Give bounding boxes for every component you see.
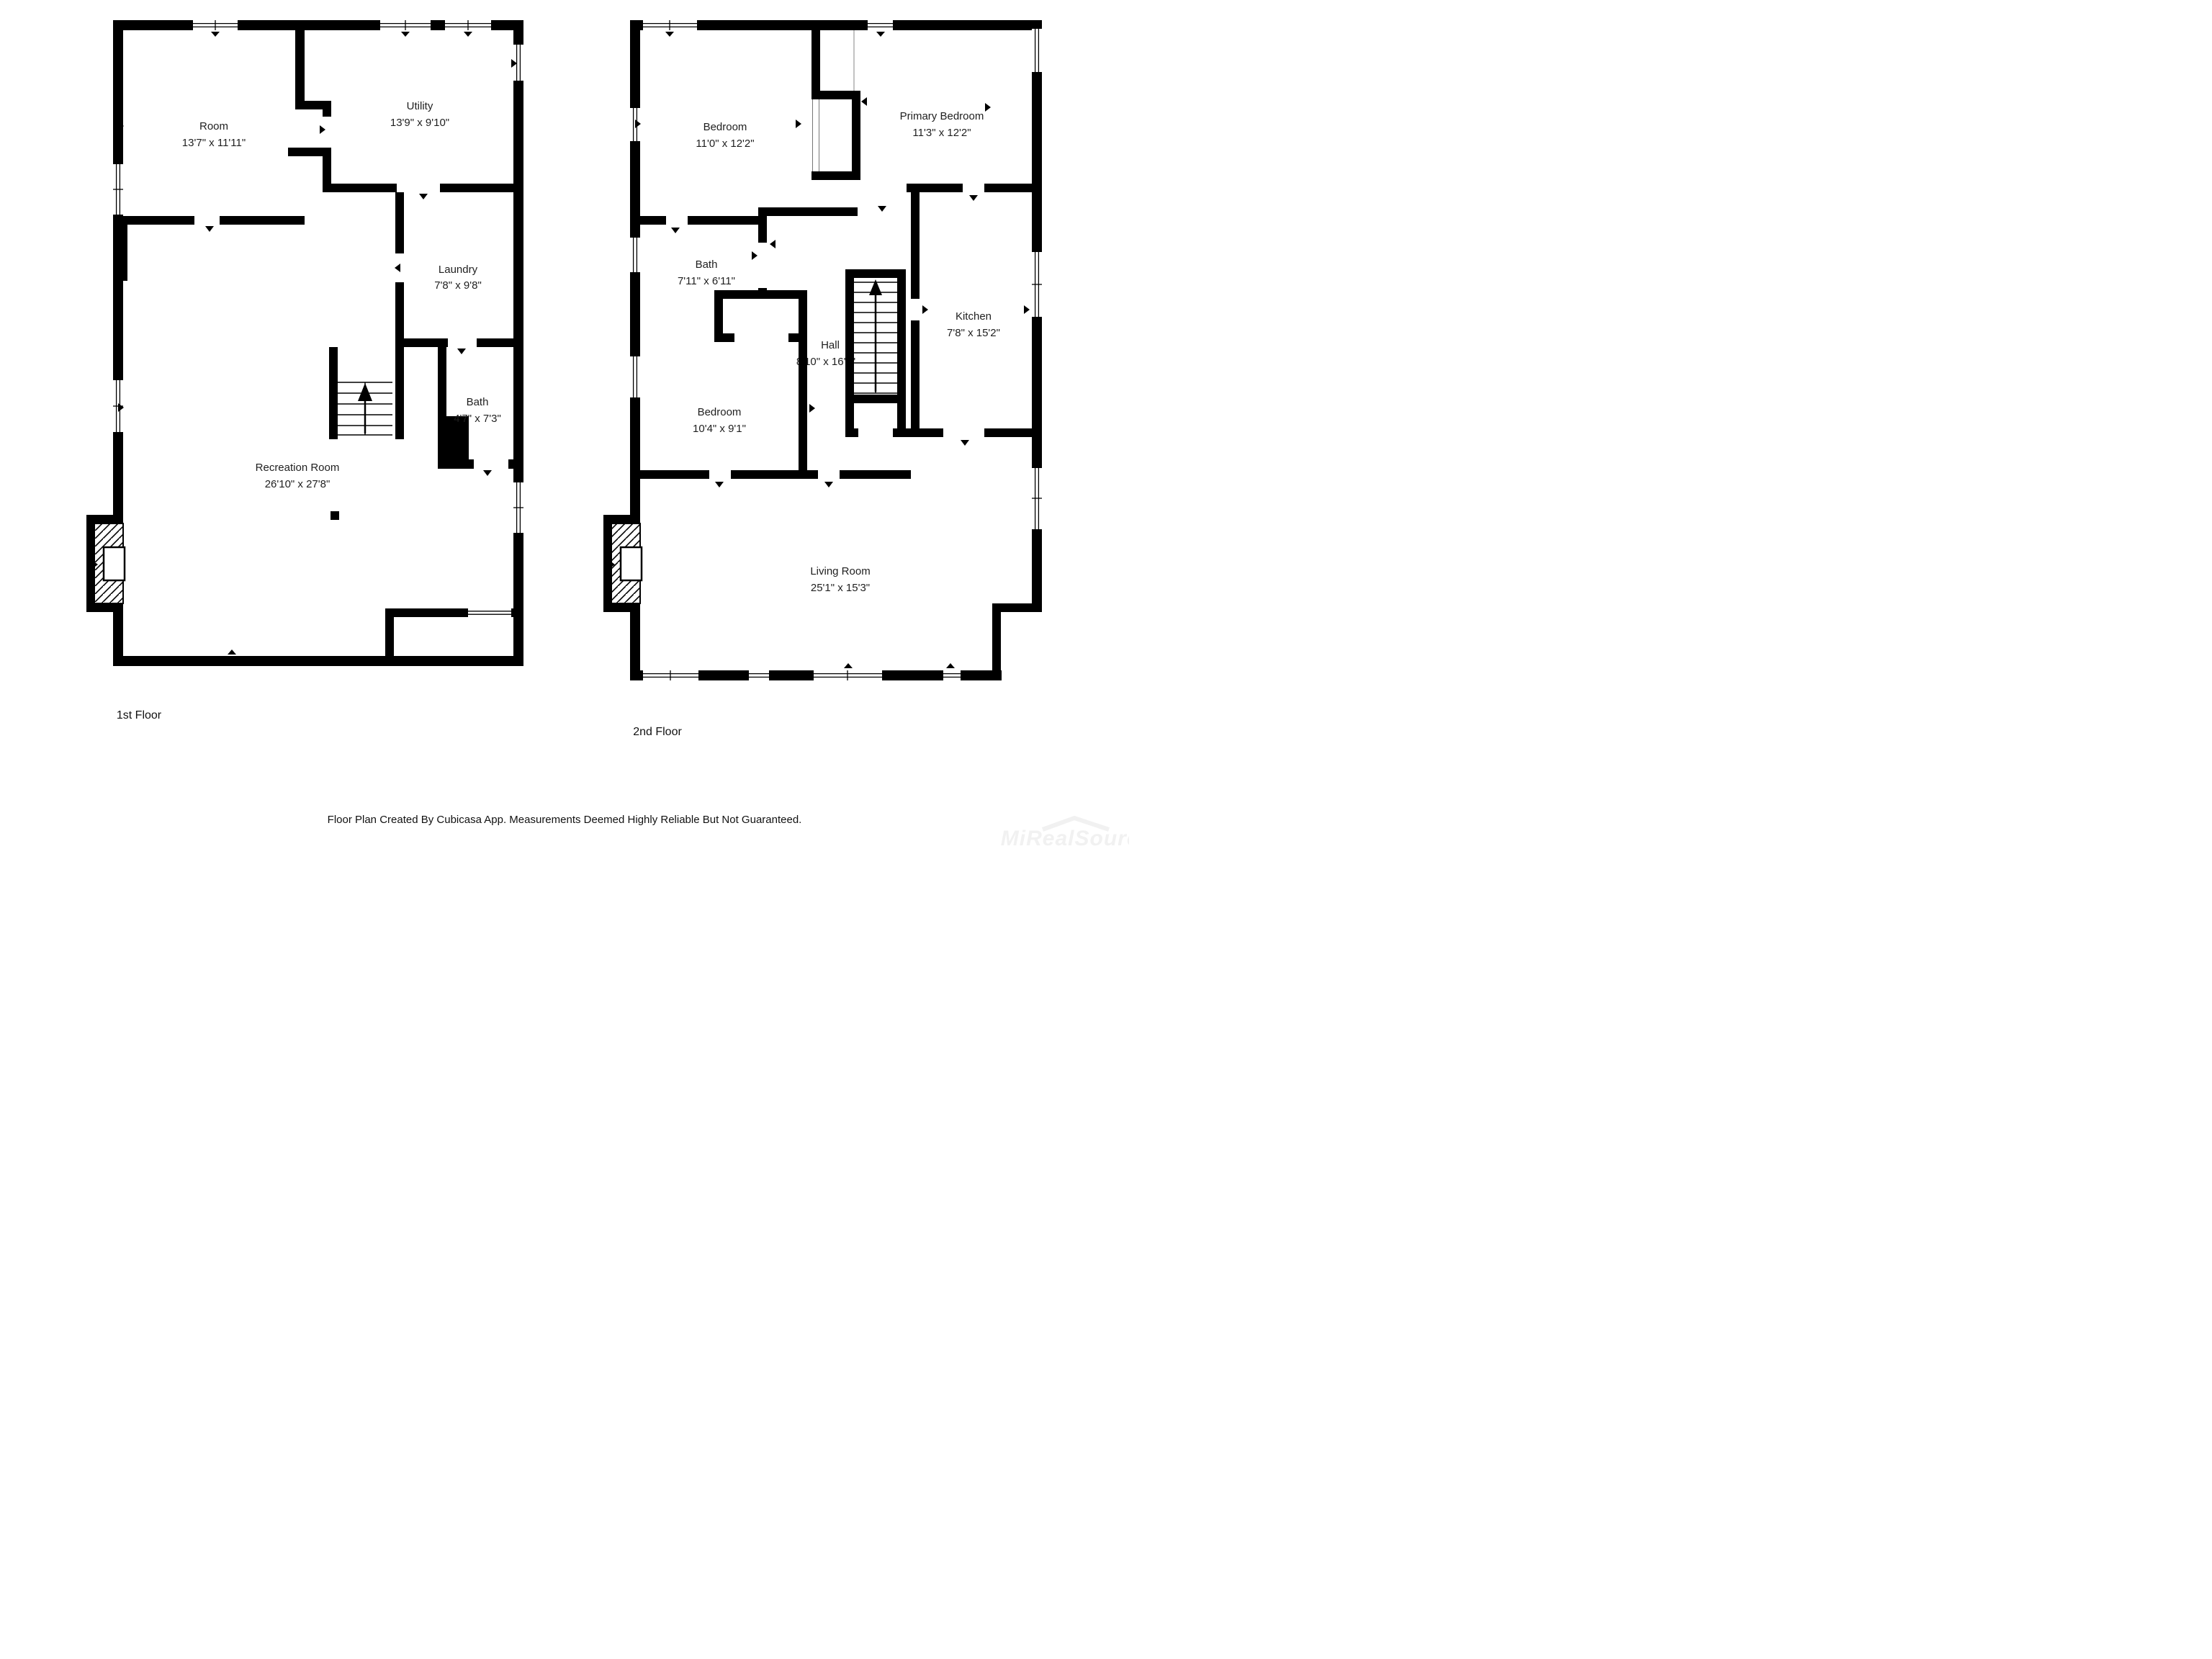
room-dims: 13'7" x 11'11" [182,137,246,149]
floor-label-1st: 1st Floor [117,709,162,721]
floor-plan-canvas: Room 13'7" x 11'11" Utility 13'9" x 9'10… [0,0,1129,847]
room-dims: 7'8" x 9'8" [434,279,482,292]
room-name: Utility [407,100,433,112]
room-dims: 7'11" x 6'11" [678,275,735,287]
window [513,482,523,533]
window [1032,468,1042,529]
window [113,164,123,215]
room-name: Bedroom [703,121,747,133]
room-dims: 11'3" x 12'2" [912,127,971,139]
window [1032,252,1042,317]
room-dims: 26'10" x 27'8" [265,478,331,490]
watermark: MiRealSource [1001,818,1129,847]
floorplan-1st-floor: Room 13'7" x 11'11" Utility 13'9" x 9'10… [86,20,523,721]
room-name: Bedroom [698,406,742,418]
room-dims: 11'0" x 12'2" [696,138,754,150]
window [468,608,511,617]
window [380,20,431,30]
room-name: Living Room [810,565,870,577]
window [445,20,491,30]
room-name: Kitchen [956,310,992,323]
room-name: Bath [467,396,489,408]
room-dims: 13'9" x 9'10" [390,117,449,129]
watermark-text: MiRealSource [1001,827,1129,847]
window [943,670,961,680]
footer-disclaimer: Floor Plan Created By Cubicasa App. Meas… [328,814,802,826]
room-name: Primary Bedroom [900,110,984,122]
room-name: Recreation Room [256,462,340,474]
support-column [331,511,339,520]
window [1032,29,1042,72]
floor-label-2nd: 2nd Floor [633,726,682,738]
stairs-icon [854,279,897,393]
window [630,356,640,397]
window [643,670,698,680]
room-dims: 10'4" x 9'1" [693,423,746,435]
window [630,238,640,272]
window [193,20,238,30]
windows [113,20,523,617]
floorplan-2nd-floor: Hall 8'10" x 16'1" [603,20,1042,738]
fireplace-icon [86,515,125,612]
window [643,20,697,30]
room-dims: 4'7" x 7'3" [454,413,501,425]
room-name: Room [199,120,228,132]
room-dims: 7'8" x 15'2" [947,327,1000,339]
room-name: Hall [821,339,840,351]
stairs-icon [338,382,392,435]
window [868,20,893,30]
window [814,670,882,680]
room-name: Laundry [439,264,478,276]
room-name: Bath [696,258,718,271]
room-dims: 25'1" x 15'3" [811,582,870,594]
room-labels: Bedroom 11'0" x 12'2" Primary Bedroom 11… [678,110,1000,594]
window [749,670,769,680]
fireplace-icon [603,515,642,612]
